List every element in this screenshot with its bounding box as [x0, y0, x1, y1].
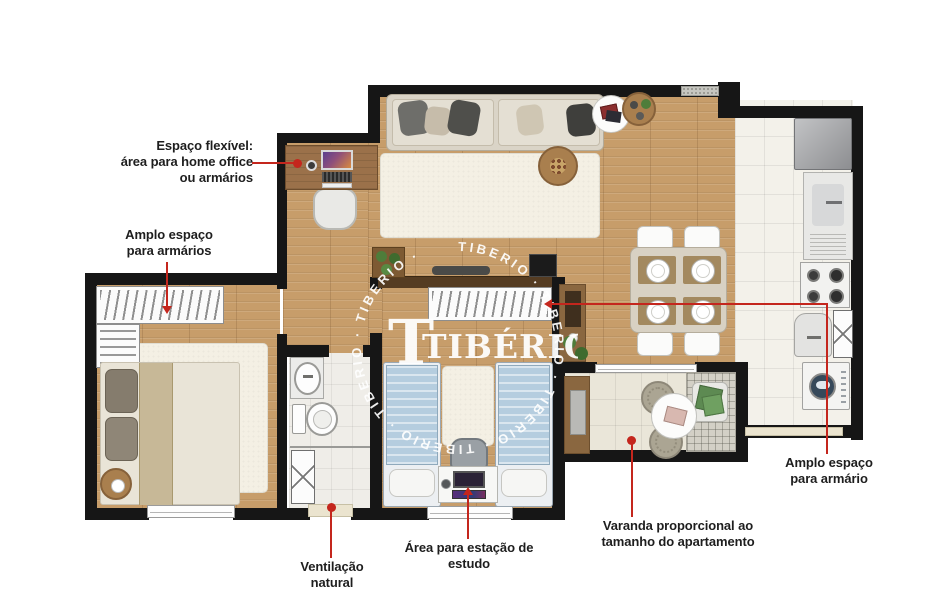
annotation-balcony: Varanda proporcional ao tamanho do apart… — [588, 518, 768, 550]
fridge — [794, 118, 852, 170]
bedroom2-window — [427, 506, 513, 519]
annotation-line: Amplo espaço — [769, 455, 889, 471]
floor-plan: TIBERIO · TIBERIO · TIBERIO · TIBERIO · … — [0, 0, 950, 596]
wall-kitchen-right — [851, 106, 863, 440]
entry-threshold — [681, 86, 719, 96]
armchair-pillow — [701, 393, 724, 416]
annotation-flex-space: Espaço flexível: área para home office o… — [100, 138, 253, 186]
stove-burner — [829, 289, 844, 304]
leader-dot-flex-space — [293, 159, 302, 168]
shower-box — [291, 450, 315, 504]
annotation-closet-left: Amplo espaço para armários — [104, 227, 234, 259]
stove-burner — [807, 269, 820, 282]
annotation-line: Área para estação de — [389, 540, 549, 556]
wall-left-lower — [277, 334, 287, 520]
wall-bedroom1-top — [85, 273, 287, 285]
wall-kitchen-top — [735, 106, 863, 118]
kitchen-cabinet — [833, 310, 853, 358]
nightstand — [100, 468, 132, 500]
desk-speaker — [441, 479, 451, 489]
cup — [630, 101, 638, 109]
bathroom-sink — [294, 362, 321, 395]
annotation-study: Área para estação de estudo — [389, 540, 549, 572]
bathroom-vanity — [290, 357, 324, 399]
kitchen-sink — [812, 184, 844, 226]
wall-bottom-2 — [233, 508, 310, 520]
leader-closet-left — [166, 262, 168, 307]
annotation-line: Ventilação — [272, 559, 392, 575]
watermark-logo-text: TIBÉRIO — [422, 326, 578, 366]
kitchen-counter — [803, 172, 853, 260]
bedroom1-closet-top — [96, 286, 224, 324]
wall-bathroom-top-a — [283, 345, 329, 357]
bed-pillow — [105, 369, 138, 413]
leader-study — [467, 494, 469, 539]
table-decor — [550, 158, 566, 174]
bed-pillow — [501, 469, 547, 497]
annotation-line: ou armários — [100, 170, 253, 186]
annotation-line: Amplo espaço — [104, 227, 234, 243]
plate — [646, 259, 670, 283]
tiberio-watermark: TIBERIO · TIBERIO · TIBERIO · TIBERIO · … — [338, 228, 578, 468]
bed-pillow — [105, 417, 138, 461]
magazine — [605, 110, 621, 123]
dining-chair — [637, 331, 673, 356]
study-laptop-screen — [453, 471, 485, 488]
coffee-table — [538, 146, 578, 186]
stove — [800, 262, 850, 308]
stove-burner — [807, 290, 820, 303]
wall-office-nook-top — [277, 133, 380, 143]
leader-flex-space — [252, 162, 296, 164]
sink-drainboard — [810, 231, 846, 255]
leader-balcony — [631, 443, 633, 517]
kitchen-service-window — [745, 427, 843, 436]
laptop-screen — [321, 150, 353, 170]
laptop — [321, 150, 353, 188]
wall-bottom-1 — [85, 508, 149, 520]
annotation-line: Varanda proporcional ao — [588, 518, 768, 534]
balcony-table-book — [663, 406, 687, 427]
bed-pillow — [389, 469, 435, 497]
nightstand-lamp — [111, 479, 125, 493]
bedroom1-window — [147, 505, 235, 518]
laptop-base — [322, 183, 352, 188]
annotation-line: para armário — [769, 471, 889, 487]
annotation-line: natural — [272, 575, 392, 591]
balcony-sliding-door — [595, 364, 697, 373]
balcony-table — [651, 393, 697, 439]
balcony-armchair — [692, 382, 728, 422]
side-table-wood — [622, 92, 656, 126]
leader-arrow-closet-left — [162, 306, 172, 314]
annotation-line: Espaço flexível: — [100, 138, 253, 154]
plate — [691, 259, 715, 283]
sofa — [386, 94, 604, 151]
leader-closet-right-h — [551, 303, 828, 305]
wall-balcony-right — [735, 362, 748, 462]
bed-blanket — [139, 363, 173, 505]
mouse — [306, 160, 317, 171]
wall-bottom-3 — [351, 508, 429, 520]
annotation-closet-right: Amplo espaço para armário — [769, 455, 889, 487]
stove-burner — [829, 268, 844, 283]
toilet-seat — [313, 410, 332, 429]
closet-hangers — [100, 290, 220, 320]
annotation-line: tamanho do apartamento — [588, 534, 768, 550]
washer-controls — [841, 371, 846, 403]
toilet-tank — [292, 404, 306, 434]
closet-shelves — [100, 328, 136, 364]
annotation-line: área para home office — [100, 154, 253, 170]
annotation-ventilation: Ventilação natural — [272, 559, 392, 591]
sofa-pillow — [446, 99, 481, 138]
plant-pot — [641, 99, 651, 109]
cup — [636, 112, 644, 120]
annotation-line: estudo — [389, 556, 549, 572]
leader-ventilation — [330, 510, 332, 558]
sink-faucet — [826, 201, 842, 204]
toilet — [292, 402, 338, 436]
office-chair — [313, 188, 357, 230]
faucet — [303, 375, 313, 378]
leader-closet-right-v — [826, 303, 828, 454]
annotation-line: para armários — [104, 243, 234, 259]
dining-table — [630, 247, 727, 333]
heater-dial — [807, 336, 821, 339]
dining-chair — [684, 331, 720, 356]
laptop-keyboard — [322, 172, 352, 182]
